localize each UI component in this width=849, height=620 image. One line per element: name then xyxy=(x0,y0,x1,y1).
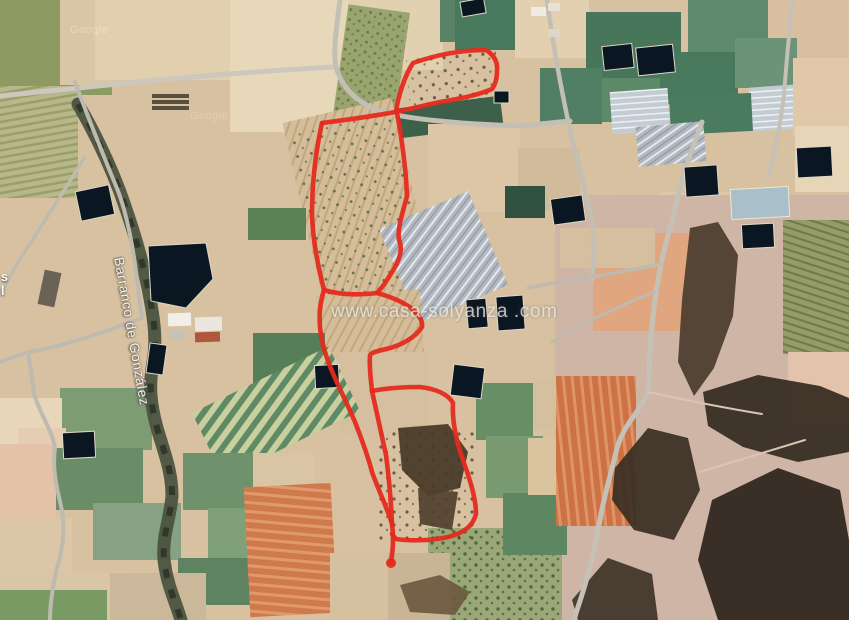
farm-building xyxy=(152,106,189,110)
farm-building xyxy=(152,94,189,98)
irrigation-pond xyxy=(741,223,774,249)
farm-building xyxy=(548,3,560,11)
irrigation-pond xyxy=(602,43,634,70)
irrigation-pond xyxy=(636,44,676,76)
farm-building xyxy=(549,29,560,37)
field-patch xyxy=(0,86,78,198)
irrigation-pond xyxy=(146,343,167,375)
field-patch xyxy=(248,208,306,240)
farm-building xyxy=(168,313,191,327)
farm-building xyxy=(195,332,220,343)
field-patch xyxy=(183,453,255,510)
field-patch xyxy=(505,186,545,218)
irrigation-pond xyxy=(730,187,789,220)
irrigation-pond xyxy=(550,195,585,225)
irrigation-pond xyxy=(62,431,95,459)
field-patch xyxy=(783,220,849,354)
farm-building xyxy=(152,100,189,104)
field-patch xyxy=(560,228,655,268)
irrigation-pond xyxy=(75,185,114,221)
irrigation-pond xyxy=(684,165,719,197)
field-patch xyxy=(540,68,602,124)
irrigation-pond xyxy=(450,364,485,399)
field-patch xyxy=(793,58,849,136)
field-patch xyxy=(749,84,800,131)
irrigation-pond xyxy=(496,295,525,331)
field-patch xyxy=(95,0,233,80)
satellite-imagery xyxy=(0,0,849,620)
field-patch xyxy=(528,438,558,495)
farm-building xyxy=(531,7,546,16)
field-patch xyxy=(110,573,206,620)
field-patch xyxy=(476,383,533,440)
satellite-map[interactable]: Google Google s l Barranco de González w… xyxy=(0,0,849,620)
field-patch xyxy=(316,289,424,358)
field-patch xyxy=(244,483,338,617)
farm-building xyxy=(195,317,222,332)
irrigation-pond xyxy=(796,146,833,178)
irrigation-pond xyxy=(466,298,488,329)
field-patch xyxy=(338,352,430,434)
scrub-patch xyxy=(418,488,458,530)
property-boundary-endpoint xyxy=(386,558,396,568)
field-patch xyxy=(0,444,56,522)
farm-building xyxy=(169,330,186,339)
irrigation-pond xyxy=(494,91,509,103)
